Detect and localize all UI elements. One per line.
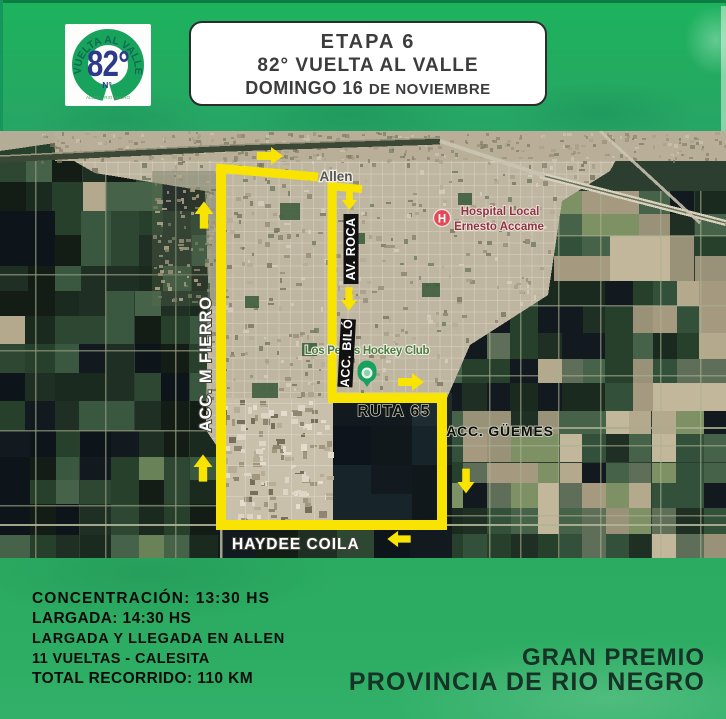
svg-text:ACC. M FIERRO: ACC. M FIERRO [197, 296, 215, 432]
svg-text:Hospital Local: Hospital Local [461, 206, 540, 218]
svg-text:AV. ROCA: AV. ROCA [344, 217, 358, 280]
svg-text:RUTA 65: RUTA 65 [357, 403, 430, 420]
svg-text:ACC. GÜEMES: ACC. GÜEMES [446, 423, 554, 439]
svg-text:Allen: Allen [319, 169, 352, 184]
svg-text:H: H [438, 214, 446, 226]
svg-text:Ernesto Accame: Ernesto Accame [454, 221, 544, 233]
svg-text:Los Pera s Hockey Club: Los Pera s Hockey Club [305, 345, 430, 357]
svg-text:82°: 82° [87, 43, 129, 83]
svg-text:ALLEN · RIO NEGRO: ALLEN · RIO NEGRO [86, 95, 131, 100]
svg-text:N°: N° [102, 80, 112, 90]
svg-text:HAYDEE COILA: HAYDEE COILA [232, 536, 360, 553]
